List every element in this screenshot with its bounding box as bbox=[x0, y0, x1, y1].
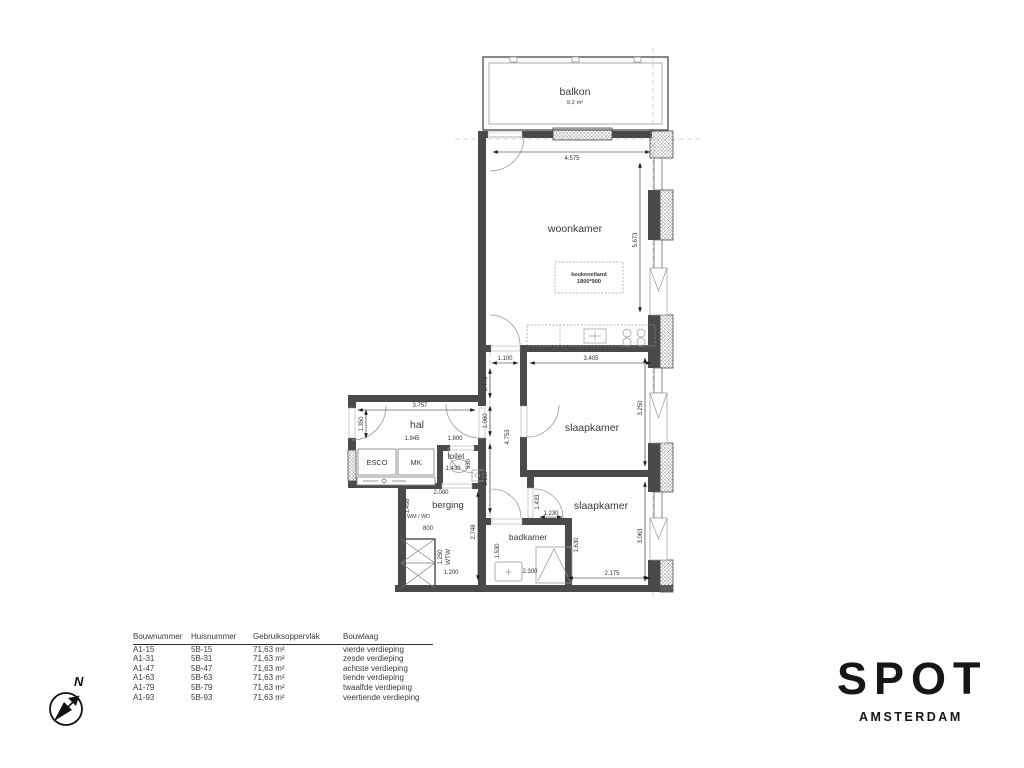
stove-burners bbox=[623, 329, 645, 346]
dim-hal-breedte: 3.757 bbox=[412, 403, 428, 409]
dim-berging-rechts: 2.748 bbox=[471, 524, 477, 540]
col-header-bouwnummer: Bouwnummer bbox=[133, 632, 191, 644]
col-header-huisnummer: Huisnummer bbox=[191, 632, 253, 644]
units-table-header-row: Bouwnummer Huisnummer Gebruiksoppervlak … bbox=[133, 632, 433, 644]
table-row: A1-475B-47 71,63 m²achtste verdieping bbox=[133, 664, 433, 674]
dim-badkamer-breedte: 2.300 bbox=[522, 569, 538, 575]
col-header-bouwlaag: Bouwlaag bbox=[343, 632, 433, 644]
dim-slaapkamer2-breedte: 2.175 bbox=[604, 571, 620, 577]
wtw-unit bbox=[401, 539, 435, 588]
dim-slaapkamer1-links: 4.753 bbox=[505, 429, 511, 445]
logo-letter-t: T bbox=[949, 652, 984, 706]
dim-gang-1: 1.475 bbox=[483, 376, 489, 392]
room-label-hal: hal bbox=[410, 419, 424, 431]
dim-wtw-breedte: 1.200 bbox=[443, 570, 459, 576]
room-label-slaapkamer2: slaapkamer bbox=[574, 500, 629, 512]
col-header-gebruiksoppervlak: Gebruiksoppervlak bbox=[253, 632, 343, 644]
table-row: A1-795B-79 71,63 m²twaalfde verdieping bbox=[133, 683, 433, 693]
dim-slaapkamer2-muur: 1.630 bbox=[574, 537, 580, 553]
wtw-label: WTW bbox=[445, 548, 452, 565]
dim-toilet-breedte: 1.800 bbox=[447, 436, 463, 442]
dim-berging-breedte: 2.000 bbox=[433, 490, 449, 496]
units-table: Bouwnummer Huisnummer Gebruiksoppervlak … bbox=[133, 632, 433, 702]
closet-esco-label: ESCO bbox=[367, 458, 388, 467]
table-row: A1-635B-63 71,63 m²tiende verdieping bbox=[133, 673, 433, 683]
dim-slaapkamer1-rechts: 3.250 bbox=[638, 400, 644, 416]
compass-north-label: N bbox=[74, 674, 84, 689]
balkon-area: 9,2 m² bbox=[567, 100, 583, 106]
room-label-slaapkamer1: slaapkamer bbox=[565, 422, 620, 434]
dim-gang-2: 1.060 bbox=[483, 413, 489, 429]
dim-toilet-diepte: 930 bbox=[466, 458, 472, 469]
table-row: A1-935B-93 71,63 m²veertiende verdieping bbox=[133, 693, 433, 703]
kitchen-island-label: keukeneiland bbox=[571, 272, 607, 278]
logo-word: S P O T bbox=[833, 652, 983, 706]
balcony: balkon 9,2 m² bbox=[483, 57, 668, 130]
dim-slaapkamer2-nis: 1.433 bbox=[535, 494, 541, 510]
dim-badkamer-hoogte: 1.530 bbox=[495, 543, 501, 559]
dim-deur-woonkamer: 1.100 bbox=[497, 356, 513, 362]
table-row: A1-155B-15 71,63 m²vierde verdieping bbox=[133, 644, 433, 654]
logo-letter-o: O bbox=[907, 652, 949, 706]
kitchen-island: keukeneiland 1800*900 bbox=[555, 262, 623, 293]
hall-closets bbox=[357, 449, 435, 485]
dim-kasten: 1.945 bbox=[404, 436, 420, 442]
room-label-balkon: balkon bbox=[560, 86, 591, 98]
bathroom-fixtures bbox=[495, 547, 572, 583]
kitchen bbox=[527, 325, 655, 346]
dim-wtw-hoogte: 1.250 bbox=[438, 549, 444, 565]
logo-letter-s: S bbox=[833, 652, 870, 706]
dim-berging-links: 1.498 bbox=[405, 498, 411, 514]
kitchen-island-size: 1800*900 bbox=[577, 279, 601, 285]
dim-slaapkamer2-deur: 1.230 bbox=[543, 511, 559, 517]
room-label-woonkamer: woonkamer bbox=[547, 223, 603, 235]
dim-woonkamer-breedte: 4.575 bbox=[564, 156, 580, 162]
wm-wd-label: WM / WD bbox=[407, 514, 430, 520]
dim-woonkamer-hoogte: 5.673 bbox=[633, 232, 639, 248]
room-label-berging: berging bbox=[432, 500, 464, 511]
logo-letter-p: P bbox=[870, 652, 907, 706]
dim-gang-3: 2.217 bbox=[483, 470, 489, 486]
dim-wm-breedte: 800 bbox=[423, 526, 434, 532]
dim-slaapkamer1-breedte: 3.405 bbox=[583, 356, 599, 362]
dim-slaapkamer2-rechts: 3.063 bbox=[638, 528, 644, 544]
room-label-badkamer: badkamer bbox=[509, 532, 547, 542]
north-compass: N bbox=[50, 674, 84, 725]
dim-hal-links: 1.350 bbox=[359, 416, 365, 432]
room-label-toilet: toilet bbox=[448, 452, 466, 461]
dim-toilet-binnen: 1.430 bbox=[445, 466, 461, 472]
logo-city: AMSTERDAM bbox=[859, 710, 983, 724]
closet-mk-label: MK bbox=[410, 458, 421, 467]
table-row: A1-315B-31 71,63 m²zesde verdieping bbox=[133, 654, 433, 664]
spot-amsterdam-logo: S P O T AMSTERDAM bbox=[833, 652, 983, 724]
